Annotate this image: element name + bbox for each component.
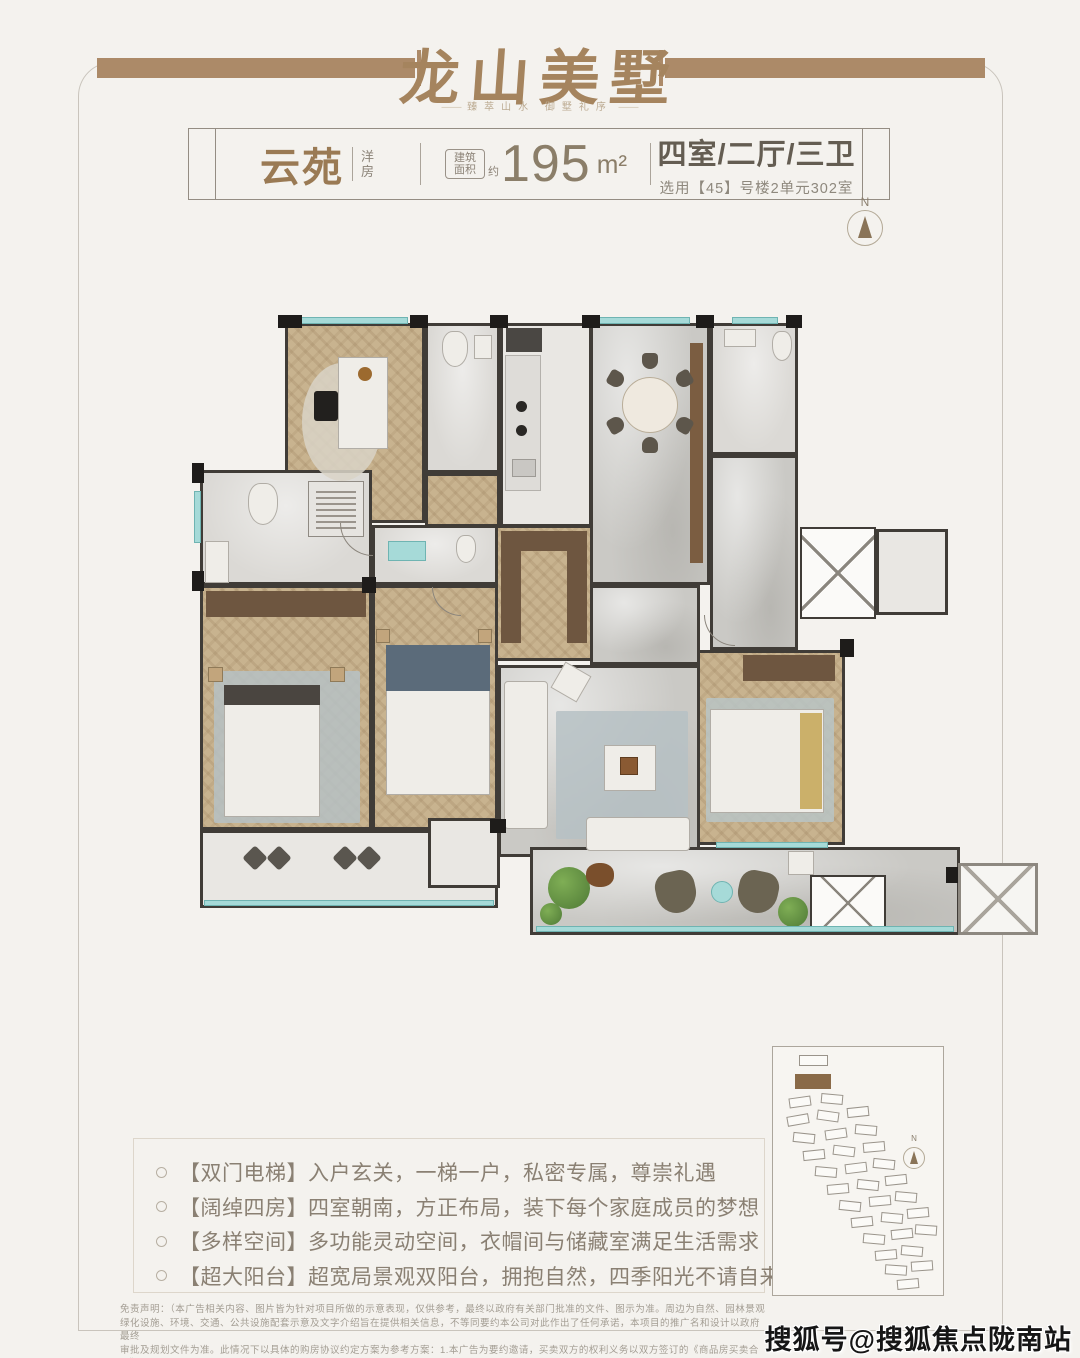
site-plan-building [793, 1132, 816, 1144]
feature-item: 【双门电梯】入户玄关，一梯一户，私密专属，尊崇礼遇 [156, 1155, 764, 1190]
site-plan-building [788, 1096, 811, 1109]
wall-pier [192, 463, 204, 483]
nightstand [208, 667, 223, 682]
study-chair [314, 391, 338, 421]
vanity [724, 329, 756, 347]
compass-circle-icon [847, 210, 883, 246]
site-plan-building [875, 1249, 898, 1261]
site-plan-building [885, 1174, 908, 1186]
bedroom2-wardrobe [206, 591, 366, 617]
dining-table [622, 377, 678, 433]
table-plant [620, 757, 638, 775]
bullet-circle-icon [156, 1201, 167, 1212]
sofa-bench [586, 817, 690, 851]
info-bar-endcap-right [862, 129, 889, 199]
wall-pier [840, 639, 854, 657]
toilet [248, 483, 278, 525]
compass-needle-icon [858, 216, 872, 238]
site-plan-building [891, 1228, 914, 1240]
wall-pier [410, 315, 428, 328]
unit-type: 洋房 [361, 149, 377, 179]
washer [788, 851, 814, 875]
window [194, 491, 201, 543]
storage-closet-right [567, 531, 587, 643]
area-unit: m² [597, 149, 627, 180]
master-pillows [800, 713, 822, 809]
window [536, 926, 954, 932]
site-plan-building [873, 1158, 896, 1170]
toilet [442, 331, 468, 367]
bullet-circle-icon [156, 1167, 167, 1178]
dining-chair [642, 353, 658, 369]
site-plan-building [832, 1145, 855, 1158]
site-plan-building [815, 1166, 838, 1178]
nightstand [478, 629, 492, 643]
vanity [205, 541, 229, 583]
kitchen-fridge [506, 328, 542, 352]
north-label: N [843, 196, 887, 208]
bullet-circle-icon [156, 1236, 167, 1247]
terrace-side-table [711, 881, 733, 903]
site-plan-building [863, 1141, 886, 1153]
feature-item: 【阔绰四房】四室朝南，方正布局，装下每个家庭成员的梦想 [156, 1190, 764, 1225]
wall-pier [362, 577, 376, 593]
elevator-shaft [800, 527, 876, 619]
room-selection: 选用【45】号楼2单元302室 [657, 177, 855, 198]
elevator-landing [876, 529, 948, 615]
site-plan-building [821, 1093, 844, 1105]
stove-burner-2 [516, 425, 527, 436]
dining-chair [642, 437, 658, 453]
window [290, 317, 408, 324]
wall-pier [192, 571, 204, 591]
room-layout: 四室/二厅/三卫 [657, 131, 855, 173]
layout-cell: 四室/二厅/三卫 选用【45】号楼2单元302室 [651, 129, 862, 199]
site-plan-building [857, 1179, 880, 1191]
hallway-wood [425, 473, 500, 527]
site-plan-building [786, 1113, 809, 1127]
site-plan-north-label: N [901, 1133, 927, 1145]
site-plan-building [824, 1128, 847, 1141]
site-plan-building [863, 1233, 886, 1245]
elevator-shaft-2 [810, 875, 886, 931]
storage-closet-left [501, 531, 521, 643]
site-plan-building [816, 1110, 839, 1123]
site-plan-building [839, 1200, 862, 1212]
tagline-dash-left: —— [442, 102, 468, 113]
study-desk-plant [358, 367, 372, 381]
feature-list: 【双门电梯】入户玄关，一梯一户，私密专属，尊崇礼遇 【阔绰四房】四室朝南，方正布… [133, 1138, 765, 1293]
ac-platform [958, 863, 1038, 935]
north-compass: N [843, 196, 887, 246]
bedroom2-headboard [224, 685, 320, 705]
window [716, 842, 828, 848]
tagline-dash-right: —— [613, 102, 639, 113]
site-plan-building [847, 1106, 870, 1118]
wall-pier [786, 315, 802, 328]
site-plan-building [911, 1260, 934, 1272]
corridor [590, 585, 700, 665]
site-plan-compass-circle-icon [903, 1147, 925, 1169]
window [204, 900, 494, 906]
area-value: 195 [501, 134, 591, 194]
frame-left [78, 104, 79, 1330]
nightstand [376, 629, 390, 643]
stove-burner-1 [516, 401, 527, 412]
site-plan-building [803, 1149, 826, 1161]
window [598, 317, 690, 324]
terrace-plant-small [540, 903, 562, 925]
master-wardrobe [743, 655, 835, 681]
feature-item: 【多样空间】多功能灵动空间，衣帽间与储藏室满足生活需求 [156, 1224, 764, 1259]
site-plan: N [772, 1046, 944, 1296]
site-plan-building [799, 1055, 828, 1066]
unit-name-cell: 云苑 洋房 [216, 129, 421, 199]
header-tagline: —— 臻萃山水 御墅礼序 —— [0, 98, 1080, 113]
site-plan-building [897, 1278, 920, 1290]
site-plan-compass-needle-icon [910, 1151, 918, 1164]
site-plan-building [901, 1245, 924, 1257]
floor-plan [190, 315, 1050, 970]
info-bar: 云苑 洋房 建筑 面积 约 195 m² 四室/二厅/三卫 选用【45】号楼2单… [188, 128, 890, 200]
site-plan-compass: N [901, 1133, 927, 1169]
bullet-circle-icon [156, 1270, 167, 1281]
bedroom3-blanket [386, 645, 490, 691]
area-badge: 建筑 面积 [445, 149, 485, 179]
site-plan-building [851, 1216, 874, 1228]
site-plan-buildings [773, 1047, 943, 1295]
window [732, 317, 778, 324]
wall-pier [490, 315, 508, 328]
toilet [456, 535, 476, 563]
site-plan-building [915, 1224, 938, 1236]
area-cell: 建筑 面积 约 195 m² [421, 129, 651, 199]
unit-name: 云苑 [260, 135, 344, 193]
site-plan-building [907, 1207, 930, 1219]
sofa-main [504, 681, 548, 829]
feature-item: 【超大阳台】超宽局景观双阳台，拥抱自然，四季阳光不请自来 [156, 1259, 764, 1294]
sink [474, 335, 492, 359]
terrace-rock [586, 863, 614, 887]
site-plan-building [827, 1183, 850, 1195]
door-arc [704, 615, 735, 646]
site-plan-building [895, 1191, 918, 1203]
site-plan-building-highlight [795, 1074, 831, 1089]
site-plan-building [855, 1124, 878, 1136]
kitchen-sink [512, 459, 536, 477]
terrace-plant-right [778, 897, 808, 927]
site-plan-building [885, 1264, 908, 1276]
ensuite-sink [388, 541, 426, 561]
nightstand [330, 667, 345, 682]
toilet [772, 331, 792, 361]
disclaimer-text: 免责声明：（本广告相关内容、图片皆为针对项目所做的示意表现，仅供参考，最终以政府… [120, 1303, 768, 1358]
watermark: 搜狐号@搜狐焦点陇南站 [765, 1318, 1072, 1357]
area-approx: 约 [488, 163, 499, 179]
name-type-divider [352, 147, 353, 181]
wall-pier [946, 867, 958, 883]
site-plan-building [869, 1195, 892, 1207]
wall-pier [278, 315, 302, 328]
wall-pier [696, 315, 714, 328]
wall-pier [582, 315, 600, 328]
wall-pier [490, 819, 506, 833]
info-bar-endcap-left [189, 129, 216, 199]
site-plan-building [881, 1212, 904, 1224]
site-plan-building [844, 1162, 867, 1175]
